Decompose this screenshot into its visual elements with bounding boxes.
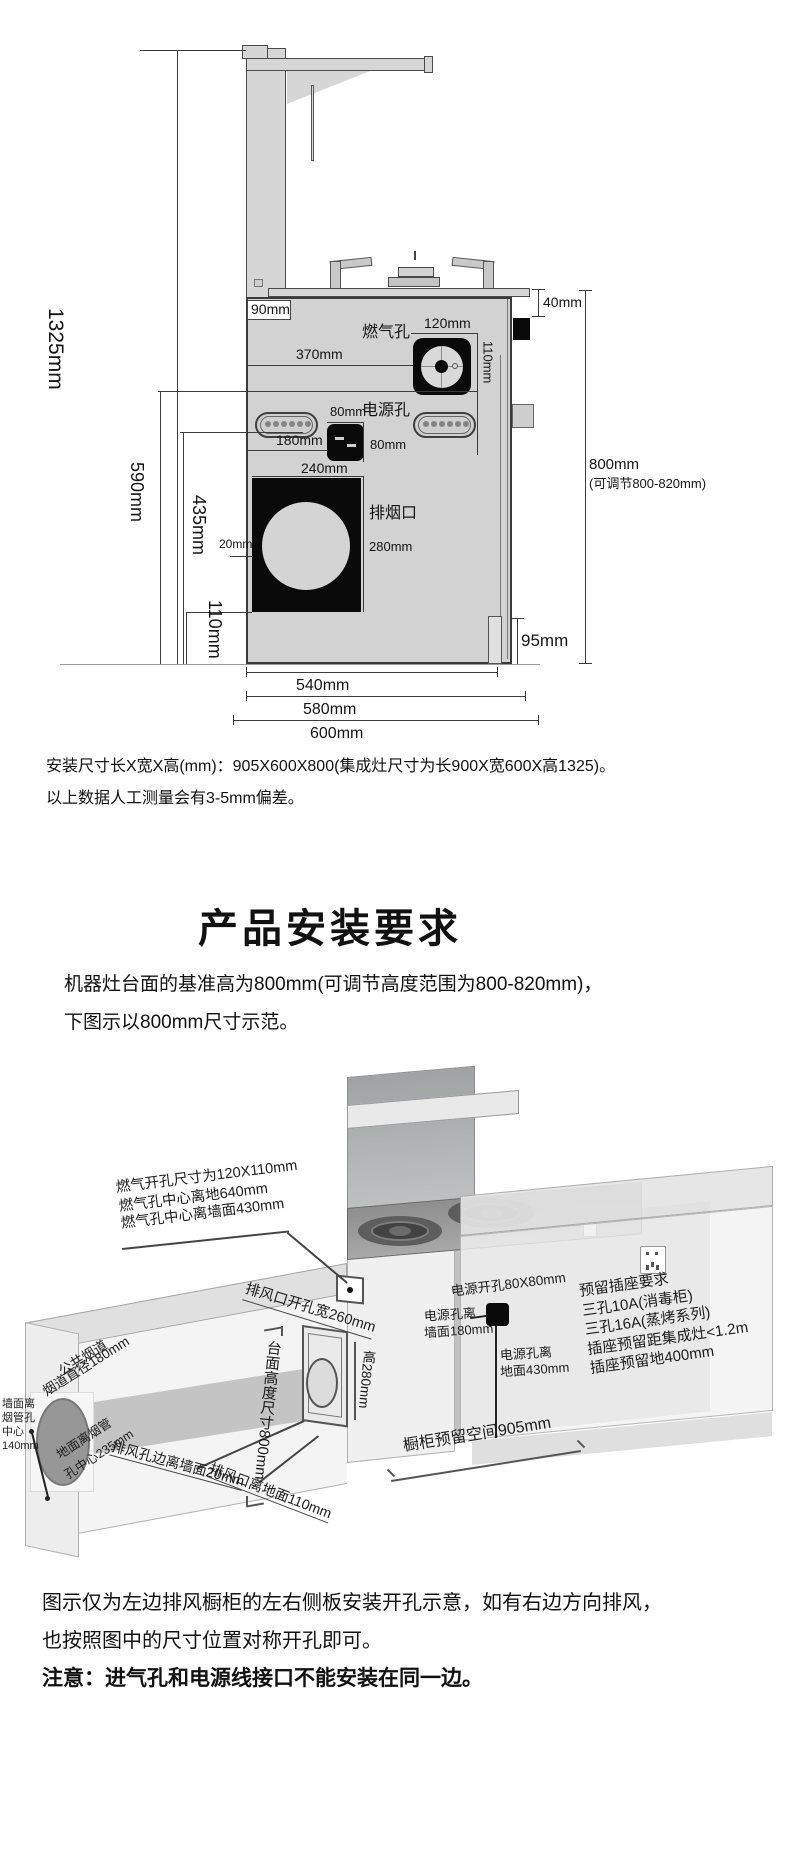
power-hole-dash-1 — [335, 437, 344, 440]
dim-80right-label: 80mm — [370, 438, 406, 452]
install-note-line2: 以上数据人工测量会有3-5mm偏差。 — [46, 784, 304, 808]
tick-40-top — [532, 289, 545, 290]
smoke-outlet-label: 排烟口 — [369, 505, 417, 523]
hood-underside — [287, 71, 370, 104]
gas-hole-dot — [452, 363, 458, 369]
power-hole — [327, 424, 364, 461]
dimline-600 — [233, 720, 538, 721]
hood-canopy-endcap — [424, 56, 433, 73]
tick-580-l — [246, 691, 247, 701]
dimline-800-v — [585, 290, 586, 664]
pot-support-right-leg — [483, 261, 494, 289]
ground-line — [60, 664, 540, 665]
product-install-page: 90mm — [0, 0, 790, 1853]
footer-warning: 注意：进气孔和电源线接口不能安装在同一边。 — [42, 1662, 483, 1692]
duct-wall-label-2: 烟管孔 — [2, 1412, 35, 1425]
stove-front-face — [347, 1232, 455, 1463]
footer-line2: 也按照图中的尺寸位置对称开孔即可。 — [42, 1624, 382, 1653]
tick-540-r — [497, 667, 498, 677]
hood-rod — [311, 85, 314, 161]
install-note-line1: 安装尺寸长X宽X高(mm)：905X600X800(集成灶尺寸为长900X宽60… — [46, 752, 615, 776]
dim-800-note-label: (可调节800-820mm) — [589, 477, 706, 491]
dim-110gas-label: 110mm — [480, 341, 494, 383]
dim-435-label: 435mm — [188, 495, 208, 555]
dimline-gas-v — [477, 333, 478, 455]
dim-20-label: 20mm — [219, 538, 252, 551]
dimline-110b-v — [186, 612, 187, 664]
dim-80top-label: 80mm — [330, 405, 366, 419]
dimline-95-v — [517, 618, 518, 664]
tick-600-r — [538, 715, 539, 725]
dimline-590-tick — [158, 391, 477, 392]
dim-580-label: 580mm — [303, 701, 356, 719]
counter-bracket-bot-v — [246, 1496, 248, 1506]
burner-pin — [414, 251, 416, 260]
dim-90-label: 90mm — [251, 302, 290, 317]
counter-bracket-bot-h — [246, 1502, 264, 1507]
requirement-line1: 机器灶台面的基准高为800mm(可调节高度范围为800-820mm)， — [64, 969, 602, 996]
dim-540-label: 540mm — [296, 677, 349, 695]
page-title: 产品安装要求 — [198, 896, 462, 954]
dim-280-label: 280mm — [369, 540, 412, 554]
smoke-outlet-circle — [262, 502, 350, 590]
stove-chimney — [246, 48, 286, 300]
burner-left-cap — [389, 1226, 411, 1236]
tick-800-top — [579, 290, 592, 291]
vent-oval-left-dots — [265, 421, 271, 427]
bottom-foot — [488, 616, 502, 664]
backsplash-panel — [347, 1066, 475, 1215]
tick-95-top — [511, 618, 524, 619]
power-hole-label: 电源孔 — [362, 402, 410, 420]
tick-580-r — [525, 691, 526, 701]
body-inner-line-2 — [507, 299, 508, 659]
tick-40-bot — [532, 316, 545, 317]
tick-800-bot — [579, 663, 592, 664]
gas-note-underline — [122, 1230, 289, 1250]
dim-800-label: 800mm — [589, 457, 639, 474]
dimline-20-tick — [230, 556, 253, 557]
wall-socket-dots-top — [646, 1252, 649, 1255]
burner-base — [388, 277, 440, 287]
dim-1325-label: 1325mm — [44, 308, 67, 390]
tick-540-l — [246, 667, 247, 677]
body-inner-line-1 — [500, 355, 501, 655]
dimline-435-v — [183, 432, 184, 664]
chimney-vent-mark — [254, 279, 263, 287]
hood-canopy — [246, 58, 426, 71]
requirement-line2: 下图示以800mm尺寸示范。 — [64, 1007, 298, 1034]
chimney-cap — [242, 45, 268, 59]
wall-socket-dots-bottom — [651, 1262, 654, 1267]
dimline-280-v — [363, 476, 364, 612]
gas-opening-dot — [347, 1287, 353, 1293]
pot-support-left-leg — [330, 261, 341, 289]
dim-600-label: 600mm — [310, 725, 363, 743]
dimline-120 — [411, 333, 478, 334]
dimline-80top — [327, 422, 364, 423]
dim-590-label: 590mm — [126, 462, 146, 522]
dimline-40-v — [538, 289, 539, 316]
power-hole-dash-2 — [347, 444, 356, 447]
dimline-180 — [246, 450, 327, 451]
dim-40-label: 40mm — [543, 295, 582, 310]
dim-180-label: 180mm — [276, 433, 323, 448]
dimline-1325-v — [177, 50, 178, 664]
dim-370-label: 370mm — [296, 347, 343, 362]
dim-110b-label: 110mm — [204, 600, 224, 659]
side-knob — [513, 318, 530, 340]
dimline-1325-top — [140, 50, 246, 51]
duct-wall-label-1: 墙面离 — [2, 1398, 35, 1411]
dimline-80-v — [363, 422, 364, 462]
counter-bracket-top-v — [281, 1326, 283, 1336]
tick-600-l — [233, 715, 234, 725]
dimline-540 — [246, 672, 497, 673]
footer-line1: 图示仅为左边排风橱柜的左右侧板安装开孔示意，如有右边方向排风， — [42, 1586, 662, 1615]
dimline-590-v — [160, 391, 161, 664]
duct-wall-label-4: 140mm — [2, 1440, 39, 1453]
dimline-580 — [246, 696, 525, 697]
bracket-905-tick-l — [387, 1469, 395, 1477]
side-tab — [512, 404, 534, 428]
vent-opening-circle — [306, 1358, 338, 1408]
vent-oval-right-dots — [423, 421, 429, 427]
dim-240-label: 240mm — [301, 461, 348, 476]
dimline-370 — [246, 365, 413, 366]
dim-95-label: 95mm — [521, 632, 568, 651]
counter-slab — [268, 288, 530, 297]
power-leader-v — [495, 1326, 497, 1438]
gas-hole-center — [435, 360, 448, 373]
gas-hole-label: 燃气孔 — [362, 324, 410, 342]
vent-280-bracket — [354, 1342, 356, 1420]
burner-cap — [398, 267, 434, 277]
dim-120-label: 120mm — [424, 316, 471, 331]
duct-wall-label-3: 中心 — [2, 1426, 24, 1439]
